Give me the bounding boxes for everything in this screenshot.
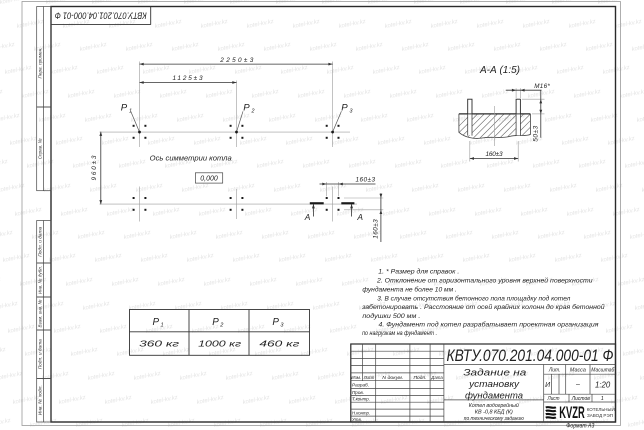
- svg-text:фундамента: фундамента: [465, 390, 523, 400]
- svg-text:Подп.: Подп.: [414, 375, 427, 380]
- svg-text:Лист: Лист: [547, 396, 560, 402]
- svg-text:P: P: [272, 317, 279, 328]
- svg-text:1000 кг: 1000 кг: [198, 339, 241, 348]
- svg-text:N докум.: N докум.: [382, 375, 403, 380]
- svg-text:А: А: [356, 212, 363, 222]
- svg-text:KVZR: KVZR: [559, 404, 585, 422]
- svg-text:Перв. примен.: Перв. примен.: [38, 48, 44, 79]
- svg-text:Дата: Дата: [430, 375, 443, 380]
- svg-text:забетонировать . Расстояние от: забетонировать . Расстояние от осей край…: [361, 303, 605, 311]
- svg-text:160±3: 160±3: [486, 151, 503, 158]
- svg-text:КВТУ.070.201.04.000-01 Ф: КВТУ.070.201.04.000-01 Ф: [447, 346, 614, 365]
- svg-text:Подп. и дата: Подп. и дата: [38, 339, 44, 369]
- svg-text:Инв. № дубл.: Инв. № дубл.: [38, 266, 44, 294]
- svg-text:Утв.: Утв.: [352, 417, 362, 423]
- svg-text:P: P: [153, 317, 160, 328]
- svg-text:Ось симметрии котла: Ось симметрии котла: [150, 153, 232, 162]
- svg-text:А: А: [304, 212, 311, 222]
- svg-text:Подп. и дата: Подп. и дата: [38, 226, 44, 256]
- svg-text:Масштаб: Масштаб: [591, 368, 614, 374]
- svg-text:–: –: [575, 381, 580, 388]
- svg-text:Котел водогрейный: Котел водогрейный: [469, 402, 519, 409]
- svg-text:2: 2: [251, 108, 255, 114]
- svg-text:P: P: [243, 102, 250, 113]
- svg-text:P: P: [121, 102, 128, 113]
- svg-text:1125±3: 1125±3: [173, 75, 203, 82]
- svg-text:КВТУ.070.201.04.000-01 Ф: КВТУ.070.201.04.000-01 Ф: [54, 10, 146, 21]
- svg-text:3: 3: [350, 108, 353, 114]
- svg-text:Лит.: Лит.: [548, 368, 561, 374]
- svg-text:460 кг: 460 кг: [259, 339, 299, 348]
- svg-text:4. Фундамент под котел разраба: 4. Фундамент под котел разрабатывает про…: [379, 321, 599, 329]
- svg-text:1. * Размер для справок .: 1. * Размер для справок .: [378, 267, 459, 275]
- svg-text:50±3: 50±3: [532, 125, 539, 141]
- svg-text:1: 1: [601, 396, 604, 402]
- svg-text:Н.контр.: Н.контр.: [352, 410, 370, 416]
- svg-text:160±3: 160±3: [356, 176, 376, 183]
- svg-text:КОТЕЛЬНЫЙ: КОТЕЛЬНЫЙ: [587, 405, 615, 412]
- svg-text:Справ. №: Справ. №: [38, 138, 44, 159]
- svg-text:P: P: [212, 317, 219, 328]
- svg-text:А-А (1:5): А-А (1:5): [479, 64, 520, 76]
- svg-text:P: P: [341, 102, 348, 113]
- svg-text:КВ -0,8 КБД (К): КВ -0,8 КБД (К): [475, 410, 513, 416]
- svg-text:ЗАВОД РЭП: ЗАВОД РЭП: [587, 413, 613, 418]
- svg-text:Листов: Листов: [571, 396, 590, 402]
- svg-text:подушки 500 мм .: подушки 500 мм .: [362, 312, 420, 320]
- svg-text:0,000: 0,000: [200, 176, 218, 183]
- svg-text:Лист: Лист: [363, 375, 375, 380]
- svg-text:Инв. № подл.: Инв. № подл.: [38, 385, 44, 415]
- svg-text:Разраб.: Разраб.: [352, 383, 369, 389]
- svg-text:Масса: Масса: [570, 368, 586, 374]
- svg-text:установку: установку: [468, 379, 521, 389]
- svg-text:Задание на: Задание на: [463, 367, 526, 377]
- svg-text:М16*: М16*: [534, 83, 550, 90]
- svg-text:Т.контр.: Т.контр.: [352, 397, 370, 403]
- svg-text:Формат А3: Формат А3: [566, 422, 594, 429]
- svg-text:360 кг: 360 кг: [139, 339, 179, 348]
- svg-text:Пров.: Пров.: [352, 390, 364, 396]
- svg-text:1:20: 1:20: [595, 380, 611, 389]
- svg-text:фундамента не более 10 мм .: фундамента не более 10 мм .: [362, 286, 457, 294]
- svg-text:160±3: 160±3: [372, 219, 379, 239]
- svg-text:3. В случае отсутствия бетонно: 3. В случае отсутствия бетонного пола пл…: [377, 295, 570, 303]
- svg-text:Изм.: Изм.: [351, 375, 361, 380]
- svg-text:1: 1: [161, 323, 164, 329]
- svg-text:Взам. инв. №: Взам. инв. №: [38, 300, 44, 328]
- svg-text:по нагрузкам на фундамент .: по нагрузкам на фундамент .: [362, 329, 437, 337]
- svg-text:по техническому заданию: по техническому заданию: [464, 416, 524, 422]
- svg-text:2. Отклонение от горизонтально: 2. Отклонение от горизонтального уровня …: [376, 277, 593, 285]
